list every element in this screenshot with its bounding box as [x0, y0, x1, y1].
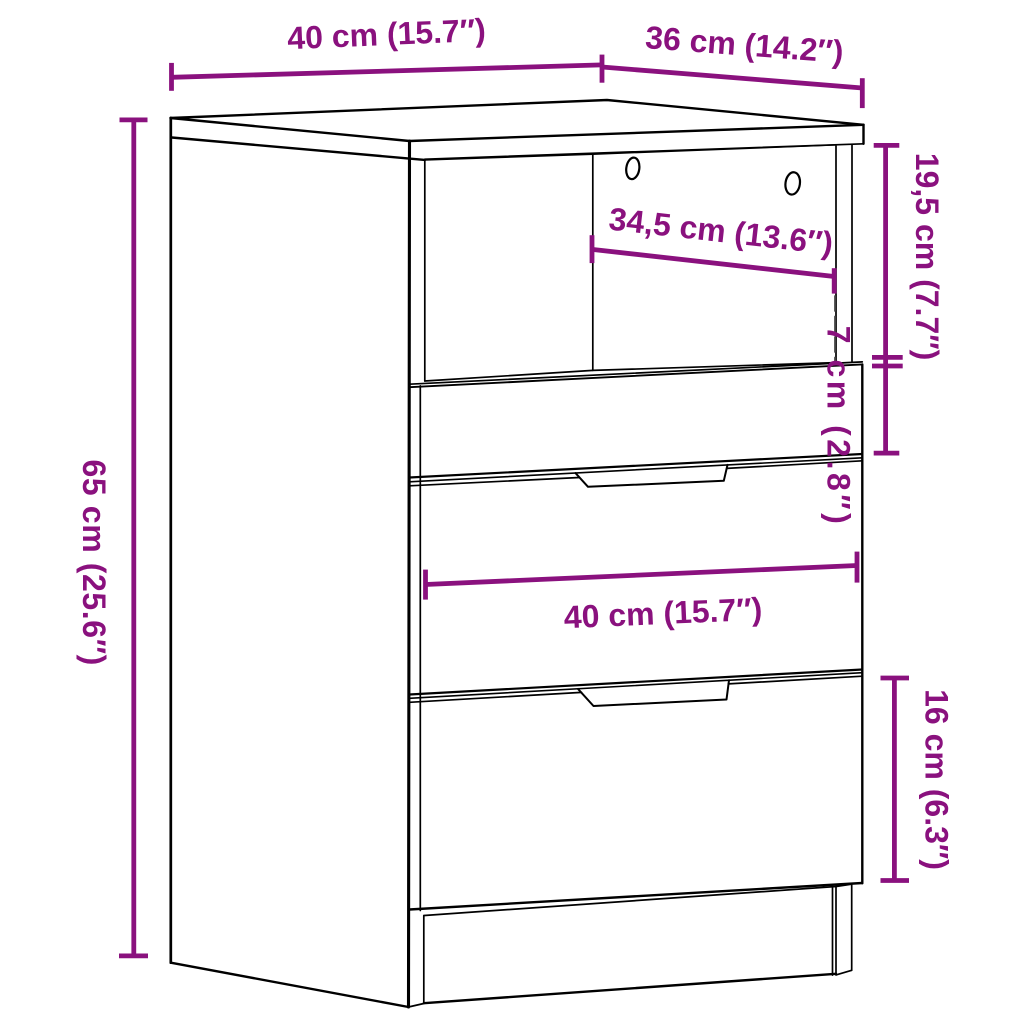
svg-text:65 cm (25.6″): 65 cm (25.6″)	[76, 460, 112, 666]
svg-text:7 cm (2.8″): 7 cm (2.8″)	[821, 326, 857, 527]
svg-text:19,5 cm (7.7″): 19,5 cm (7.7″)	[909, 153, 945, 360]
svg-text:16 cm (6.3″): 16 cm (6.3″)	[919, 689, 955, 870]
